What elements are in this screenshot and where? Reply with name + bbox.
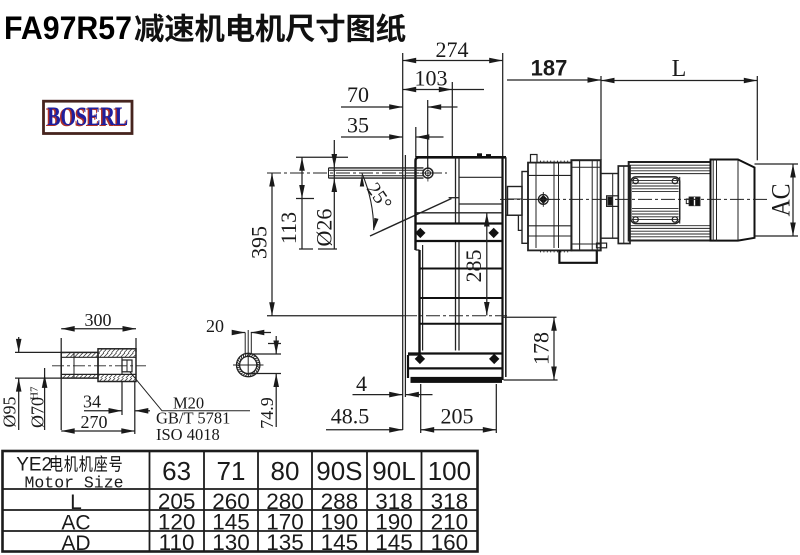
svg-text:ISO 4018: ISO 4018 [156,425,220,444]
svg-text:178: 178 [529,332,554,365]
svg-text:20: 20 [206,316,224,336]
svg-text:FA97R57: FA97R57 [4,10,132,46]
svg-text:L: L [672,56,687,82]
svg-text:Ø26: Ø26 [312,209,337,247]
svg-text:274: 274 [436,37,469,62]
svg-text:90L: 90L [372,456,415,486]
svg-text:Ø70: Ø70 [28,397,48,428]
svg-text:34: 34 [83,392,101,412]
svg-text:70: 70 [347,82,369,107]
svg-text:AC: AC [767,184,796,217]
svg-text:80: 80 [271,456,300,486]
svg-text:Ø95: Ø95 [0,397,20,428]
svg-text:L: L [70,491,82,514]
svg-text:AD: AD [61,532,90,555]
svg-text:145: 145 [321,530,359,555]
svg-text:395: 395 [247,226,272,259]
svg-text:90S: 90S [316,456,362,486]
svg-text:100: 100 [428,456,471,486]
svg-text:BOSERL: BOSERL [47,102,128,131]
svg-text:35: 35 [347,112,369,137]
svg-text:71: 71 [217,456,246,486]
svg-text:145: 145 [375,530,413,555]
svg-text:135: 135 [266,530,304,555]
svg-text:205: 205 [441,404,474,429]
svg-text:113: 113 [276,212,301,244]
svg-text:48.5: 48.5 [331,404,370,429]
svg-text:Motor Size: Motor Size [25,474,124,493]
svg-text:187: 187 [531,56,568,81]
svg-text:130: 130 [212,530,250,555]
svg-text:110: 110 [159,530,195,555]
svg-text:74.9: 74.9 [257,397,277,429]
svg-text:4: 4 [356,371,367,396]
svg-text:63: 63 [162,456,191,486]
svg-text:285: 285 [461,250,486,283]
svg-text:160: 160 [431,530,469,555]
svg-text:H7: H7 [29,386,41,400]
svg-text:270: 270 [81,412,108,432]
svg-text:YE2: YE2 [16,455,52,476]
svg-text:103: 103 [415,66,448,91]
svg-text:300: 300 [85,310,112,330]
